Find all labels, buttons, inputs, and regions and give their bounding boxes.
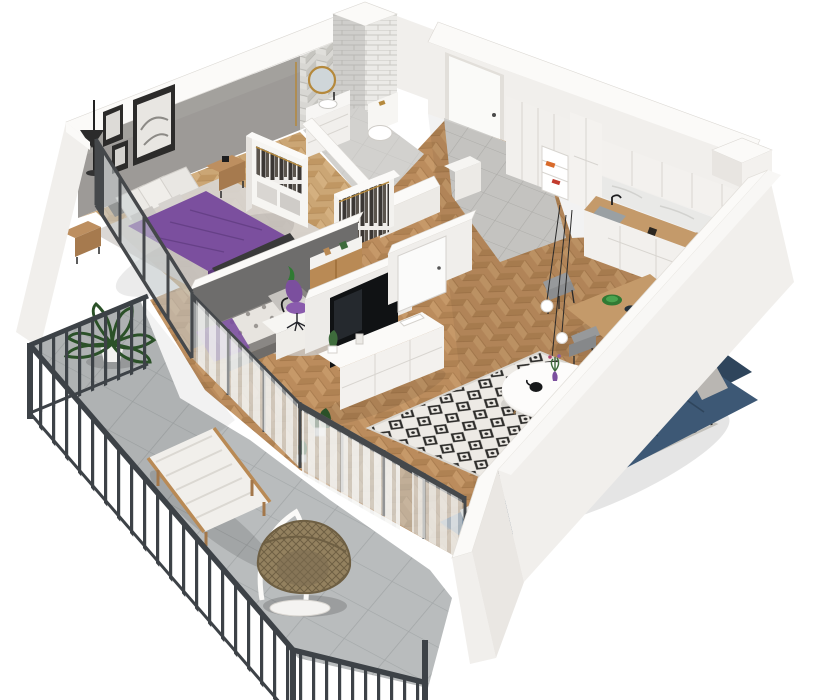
door-handle	[492, 113, 496, 117]
corner-post	[27, 343, 33, 419]
end-post	[422, 640, 428, 700]
toilet-bowl	[368, 126, 392, 141]
egg-chair-seat	[277, 550, 329, 586]
corner-post	[290, 648, 296, 700]
alarm-clock	[222, 156, 229, 162]
white-vase	[356, 334, 363, 344]
round-mirror	[309, 67, 335, 93]
black-teapot	[530, 382, 543, 392]
floorplan-stage	[0, 0, 821, 700]
sink	[319, 100, 337, 109]
apartment-3d-render	[0, 0, 821, 700]
door-handle	[437, 266, 441, 270]
